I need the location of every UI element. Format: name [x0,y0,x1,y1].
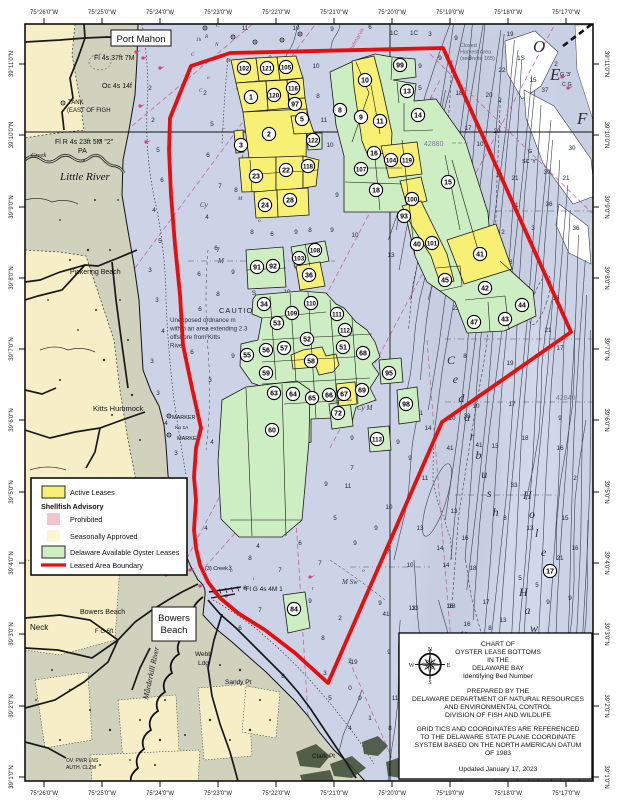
svg-text:15: 15 [444,179,452,186]
svg-text:22: 22 [282,167,290,174]
svg-text:Shellfish Advisory: Shellfish Advisory [41,502,103,511]
svg-text:40: 40 [413,241,421,248]
svg-text:75°18'0"W: 75°18'0"W [494,791,522,797]
svg-text:C: C [447,353,456,367]
svg-text:AND ENVIRONMENTAL CONTROL: AND ENVIRONMENTAL CONTROL [444,704,552,711]
svg-text:9: 9 [418,63,422,70]
svg-text:6: 6 [238,625,242,632]
svg-text:10: 10 [326,142,334,149]
svg-text:*Fl G 4s 4M 1: *Fl G 4s 4M 1 [243,586,283,593]
svg-text:9: 9 [374,525,378,532]
svg-text:39°3'0"N: 39°3'0"N [9,622,15,645]
svg-text:95: 95 [385,370,393,377]
svg-text:13: 13 [416,525,424,532]
svg-text:39°11'0"N: 39°11'0"N [9,51,15,77]
svg-text:24: 24 [261,202,269,209]
svg-text:36: 36 [572,225,580,232]
svg-text:10: 10 [351,232,359,239]
svg-text:39°5'0"N: 39°5'0"N [603,480,609,503]
svg-text:39°9'0"N: 39°9'0"N [9,195,15,218]
svg-text:101: 101 [427,240,438,247]
svg-text:107: 107 [356,166,367,173]
svg-text:DIVISION OF FISH AND WILDLIFE: DIVISION OF FISH AND WILDLIFE [445,712,551,719]
svg-text:36: 36 [305,272,313,279]
svg-text:6: 6 [160,177,164,184]
svg-text:4: 4 [164,420,168,427]
svg-text:39°7'0"N: 39°7'0"N [603,337,609,360]
svg-text:13: 13 [526,525,534,532]
svg-text:15: 15 [529,77,537,84]
svg-text:4: 4 [210,439,214,446]
svg-text:1S: 1S [517,55,525,62]
svg-text:53: 53 [273,320,281,327]
svg-text:11: 11 [321,117,328,124]
svg-text:Fl R 4s 23ft 5M "2": Fl R 4s 23ft 5M "2" [55,139,114,146]
svg-text:(EAST OF FIGH: (EAST OF FIGH [67,108,111,114]
svg-text:G '3': G '3' [560,72,571,78]
svg-text:6: 6 [270,231,274,238]
svg-text:5: 5 [535,582,539,589]
svg-text:Kitts Hummock: Kitts Hummock [93,404,144,413]
svg-text:75°25'0"W: 75°25'0"W [88,791,116,797]
svg-text:DELAWARE DEPARTMENT OF NATURAL: DELAWARE DEPARTMENT OF NATURAL RESOURCES [412,696,584,703]
svg-text:59: 59 [262,370,270,377]
svg-text:F G 6ft: F G 6ft [95,629,114,635]
svg-text:20: 20 [485,92,493,99]
svg-text:75°26'0"W: 75°26'0"W [30,10,58,16]
svg-text:4: 4 [256,543,260,550]
svg-text:75°25'0"W: 75°25'0"W [88,10,116,16]
svg-text:Sandy Pt: Sandy Pt [225,679,252,686]
svg-text:16: 16 [463,621,471,628]
svg-text:M: M [225,58,231,64]
svg-text:IN THE: IN THE [487,657,509,664]
svg-text:11: 11 [242,25,249,32]
svg-text:8: 8 [316,93,320,100]
svg-text:9: 9 [231,353,235,360]
svg-text:10: 10 [292,25,300,32]
svg-text:Closed: Closed [460,43,477,49]
svg-text:1h: 1h [196,37,202,43]
svg-text:75°20'0"W: 75°20'0"W [378,791,406,797]
svg-text:2: 2 [267,131,271,138]
svg-text:9: 9 [330,227,334,234]
svg-text:W: W [409,662,415,669]
svg-text:91: 91 [253,264,261,271]
svg-text:s: s [487,486,492,500]
svg-text:C: C [222,128,226,134]
svg-text:10: 10 [406,562,414,569]
svg-text:75°17'0"W: 75°17'0"W [552,10,580,16]
svg-text:9: 9 [335,192,339,199]
svg-text:AUTH. CLZM: AUTH. CLZM [66,765,96,771]
svg-text:C: C [199,88,203,94]
svg-text:21: 21 [544,327,552,334]
svg-text:64: 64 [289,391,297,398]
svg-text:9: 9 [568,595,572,602]
svg-text:75°22'0"W: 75°22'0"W [262,791,290,797]
svg-text:5: 5 [518,575,522,582]
svg-text:Oc 4s 14f: Oc 4s 14f [102,83,132,90]
svg-text:66: 66 [325,392,333,399]
svg-text:39°1'0"N: 39°1'0"N [9,765,15,788]
svg-text:7: 7 [318,560,322,567]
svg-text:9: 9 [358,695,362,702]
svg-text:4: 4 [204,525,208,532]
svg-text:56: 56 [262,347,270,354]
svg-text:14: 14 [424,425,432,432]
svg-text:6: 6 [206,152,210,159]
svg-text:75°23'0"W: 75°23'0"W [204,10,232,16]
svg-text:18: 18 [469,565,477,572]
svg-text:13: 13 [411,605,419,612]
svg-text:10: 10 [476,141,484,148]
svg-text:9: 9 [396,439,400,446]
svg-text:5: 5 [156,147,160,154]
svg-text:39°5'0"N: 39°5'0"N [9,480,15,503]
svg-text:33: 33 [510,482,518,489]
svg-text:Port Mahon: Port Mahon [116,34,165,45]
svg-text:7: 7 [258,607,262,614]
svg-text:M Sw: M Sw [341,578,358,586]
svg-text:16: 16 [571,545,579,552]
svg-text:2: 2 [501,229,505,236]
svg-text:98: 98 [402,401,410,408]
svg-text:18: 18 [521,435,529,442]
svg-text:3: 3 [531,225,535,232]
svg-text:Webb: Webb [195,651,212,658]
svg-text:S: S [428,679,432,686]
svg-text:2: 2 [554,61,558,68]
svg-text:19: 19 [506,31,514,38]
svg-text:52: 52 [303,336,311,343]
svg-text:u: u [481,467,487,481]
svg-text:15: 15 [561,515,569,522]
svg-text:39°3'0"N: 39°3'0"N [603,622,609,645]
svg-text:7: 7 [278,567,282,574]
svg-text:N: N [428,646,433,653]
svg-text:9: 9 [546,599,550,606]
svg-text:110: 110 [306,300,317,307]
svg-text:39: 39 [543,169,551,176]
svg-text:2: 2 [151,117,155,124]
svg-text:E: E [447,662,451,669]
svg-text:TO THE DELAWARE STATE PLANE CO: TO THE DELAWARE STATE PLANE COORDINATE [420,734,576,741]
svg-text:Leased Area Boundary: Leased Area Boundary [70,561,144,570]
svg-text:10: 10 [312,63,320,70]
svg-text:10: 10 [361,77,369,84]
svg-text:6: 6 [190,349,194,356]
svg-text:51: 51 [339,344,347,351]
svg-text:92: 92 [269,263,277,270]
svg-text:69: 69 [358,387,366,394]
svg-text:75°19'0"W: 75°19'0"W [436,10,464,16]
svg-text:39°11'0"N: 39°11'0"N [603,51,609,77]
svg-text:13: 13 [491,443,499,450]
svg-text:3: 3 [323,670,327,677]
svg-text:C G: C G [562,82,572,88]
svg-text:8: 8 [281,673,285,680]
svg-text:No 1A: No 1A [175,425,189,431]
svg-text:5: 5 [418,85,422,92]
svg-text:8: 8 [463,353,467,360]
svg-text:2: 2 [338,615,342,622]
svg-text:9: 9 [378,600,382,607]
svg-text:8: 8 [250,229,254,236]
svg-text:2: 2 [203,90,207,97]
svg-text:44: 44 [518,302,526,309]
svg-text:o: o [529,507,535,521]
svg-text:o: o [207,75,210,81]
svg-text:99: 99 [396,62,404,69]
svg-text:28: 28 [286,197,294,204]
svg-text:60: 60 [268,427,276,434]
svg-text:9: 9 [294,229,298,236]
svg-text:8: 8 [234,187,238,194]
svg-text:r: r [470,429,475,443]
svg-text:14: 14 [436,545,444,552]
svg-text:8: 8 [308,227,312,234]
svg-text:8: 8 [338,107,342,114]
svg-text:9: 9 [454,35,458,42]
svg-text:75°26'0"W: 75°26'0"W [30,791,58,797]
svg-text:1: 1 [249,94,253,101]
svg-text:(3) Creek: (3) Creek [205,566,228,572]
svg-text:11: 11 [392,695,399,702]
svg-text:SC 'Y': SC 'Y' [522,159,537,165]
svg-text:6: 6 [197,271,201,278]
svg-text:4: 4 [205,214,209,221]
svg-text:22: 22 [498,67,506,74]
svg-text:39°8'0"N: 39°8'0"N [9,266,15,289]
svg-text:119: 119 [402,157,413,164]
svg-text:Clark Pt: Clark Pt [312,753,335,760]
svg-text:55: 55 [243,352,251,359]
svg-text:N: N [214,42,219,48]
svg-text:7: 7 [350,465,354,472]
svg-text:105: 105 [281,64,292,71]
svg-text:Prohibited: Prohibited [70,515,102,524]
svg-text:39°2'0"N: 39°2'0"N [603,694,609,717]
svg-text:3: 3 [156,390,160,397]
svg-text:39°8'0"N: 39°8'0"N [603,266,609,289]
svg-text:4: 4 [348,725,352,732]
svg-text:97: 97 [291,101,299,108]
svg-text:21: 21 [556,555,564,562]
svg-text:(see note 165): (see note 165) [460,56,495,62]
svg-text:O: O [533,37,545,56]
svg-text:Little River: Little River [59,171,111,183]
svg-text:19: 19 [506,360,514,367]
svg-text:b: b [476,448,482,462]
svg-text:42: 42 [481,285,489,292]
svg-text:10: 10 [472,403,480,410]
svg-text:C: C [191,52,195,58]
svg-text:5: 5 [158,238,162,245]
svg-text:Seasonally Approved: Seasonally Approved [70,532,138,541]
svg-text:4: 4 [161,328,165,335]
svg-text:75°18'0"W: 75°18'0"W [494,10,522,16]
svg-text:Harvest Area: Harvest Area [460,50,491,56]
svg-text:17: 17 [508,401,516,408]
svg-text:41: 41 [476,251,484,258]
svg-text:1: 1 [368,715,372,722]
svg-text:SYSTEM BASED ON THE NORTH AMER: SYSTEM BASED ON THE NORTH AMERICAN DATUM [415,742,582,749]
svg-text:Bowers: Bowers [158,613,190,624]
svg-text:36: 36 [545,201,553,208]
svg-text:9: 9 [350,435,354,442]
svg-text:h: h [493,505,499,519]
svg-text:11: 11 [376,118,384,125]
svg-text:75°24'0"W: 75°24'0"W [146,10,174,16]
svg-text:39°6'0"N: 39°6'0"N [9,408,15,431]
svg-text:8: 8 [321,635,325,642]
svg-text:6: 6 [298,540,302,547]
svg-text:39°6'0"N: 39°6'0"N [603,408,609,431]
svg-text:14: 14 [442,562,450,569]
svg-text:39°4'0"N: 39°4'0"N [9,551,15,574]
svg-text:9: 9 [330,26,334,33]
svg-text:57: 57 [280,345,288,352]
svg-text:PREPARED BY THE: PREPARED BY THE [467,688,530,695]
svg-text:4: 4 [152,207,156,214]
svg-text:Identifying Bed Number: Identifying Bed Number [463,673,534,680]
svg-text:13: 13 [403,88,411,95]
svg-text:5: 5 [300,116,304,123]
svg-text:5: 5 [210,121,214,128]
svg-text:39°10'0"N: 39°10'0"N [9,122,15,149]
svg-text:21: 21 [562,175,570,182]
svg-text:41: 41 [446,445,454,452]
svg-text:75°20'0"W: 75°20'0"W [378,10,406,16]
svg-text:75°24'0"W: 75°24'0"W [146,791,174,797]
svg-text:OF 1983: OF 1983 [485,750,511,757]
svg-text:2: 2 [148,85,152,92]
svg-text:PA: PA [78,148,87,155]
svg-text:3: 3 [148,267,152,274]
svg-text:6: 6 [368,24,372,31]
svg-text:G: G [528,149,532,155]
svg-text:39°10'0"N: 39°10'0"N [603,122,609,149]
svg-text:16: 16 [461,535,469,542]
svg-text:8: 8 [248,555,252,562]
svg-text:23: 23 [252,173,260,180]
svg-text:d: d [458,391,465,405]
svg-text:67: 67 [340,391,348,398]
svg-text:17: 17 [464,125,472,132]
svg-text:o: o [258,218,261,224]
svg-text:e: e [453,372,459,386]
svg-text:42840: 42840 [556,395,576,402]
svg-text:8: 8 [503,515,507,522]
svg-text:75°21'0"W: 75°21'0"W [320,10,348,16]
svg-text:30: 30 [568,145,576,152]
svg-text:9: 9 [387,649,391,656]
svg-text:5: 5 [328,695,332,702]
svg-text:112: 112 [340,327,351,334]
svg-text:CHART OF: CHART OF [481,641,515,648]
svg-text:75°22'0"W: 75°22'0"W [262,10,290,16]
svg-text:39°2'0"N: 39°2'0"N [9,694,15,717]
svg-text:9: 9 [353,540,357,547]
svg-text:F: F [576,109,588,128]
svg-text:3: 3 [174,450,178,457]
svg-text:Delaware Available Oyster Leas: Delaware Available Oyster Leases [70,548,180,557]
svg-text:109: 109 [287,310,298,317]
svg-text:45: 45 [441,277,449,284]
svg-text:20: 20 [493,128,501,135]
svg-text:Active Leases: Active Leases [70,488,115,497]
svg-text:63: 63 [270,390,278,397]
svg-text:offshore from Kitts: offshore from Kitts [170,334,220,341]
svg-text:75°23'0"W: 75°23'0"W [204,791,232,797]
svg-text:102: 102 [239,65,250,72]
svg-text:13: 13 [499,617,507,624]
svg-text:121: 121 [262,65,273,72]
svg-text:7: 7 [216,247,220,254]
svg-text:Pickering Beach: Pickering Beach [70,269,121,276]
svg-text:75°21'0"W: 75°21'0"W [320,791,348,797]
svg-text:9: 9 [438,55,442,62]
svg-text:34: 34 [260,301,268,308]
svg-text:111: 111 [332,311,342,318]
svg-text:6: 6 [198,306,202,313]
svg-text:1C: 1C [410,30,419,37]
svg-text:MARKER: MARKER [172,415,196,421]
svg-text:11: 11 [422,475,429,482]
svg-text:5: 5 [333,515,337,522]
svg-text:116: 116 [288,85,299,92]
svg-text:Fl 4s 37ft 7M: Fl 4s 37ft 7M [94,55,135,62]
svg-text:84: 84 [290,606,298,613]
svg-text:14: 14 [414,112,422,119]
svg-text:17: 17 [556,345,564,352]
svg-text:47: 47 [470,319,478,326]
svg-text:TANK: TANK [68,100,84,106]
svg-text:21: 21 [511,175,519,182]
svg-text:2: 2 [348,658,352,665]
svg-text:Ldg: Ldg [198,660,209,667]
svg-text:8: 8 [388,725,392,732]
svg-text:13: 13 [450,508,458,515]
svg-text:3: 3 [150,358,154,365]
svg-text:DELAWARE BAY: DELAWARE BAY [472,665,524,672]
svg-text:17: 17 [482,599,490,606]
svg-text:9: 9 [408,455,412,462]
svg-text:16: 16 [556,445,564,452]
svg-text:16: 16 [370,150,378,157]
svg-text:9: 9 [558,415,562,422]
svg-text:75°17'0"W: 75°17'0"W [552,791,580,797]
svg-text:9: 9 [308,598,312,605]
svg-text:3: 3 [155,297,159,304]
svg-text:113: 113 [372,436,383,443]
svg-text:H: H [518,585,529,599]
svg-text:o: o [230,568,233,574]
svg-text:Cy: Cy [200,201,209,209]
svg-text:Neck: Neck [30,623,49,632]
svg-text:OYSTER LEASE BOTTOMS: OYSTER LEASE BOTTOMS [455,649,541,656]
svg-text:93: 93 [400,213,408,220]
svg-text:9: 9 [231,269,235,276]
svg-text:17: 17 [546,568,554,575]
svg-text:42880: 42880 [424,141,444,148]
svg-text:Bowers Beach: Bowers Beach [80,609,125,616]
svg-text:H: H [522,488,533,502]
svg-text:58: 58 [307,358,315,365]
svg-text:2: 2 [498,97,502,104]
svg-text:3: 3 [428,31,432,38]
